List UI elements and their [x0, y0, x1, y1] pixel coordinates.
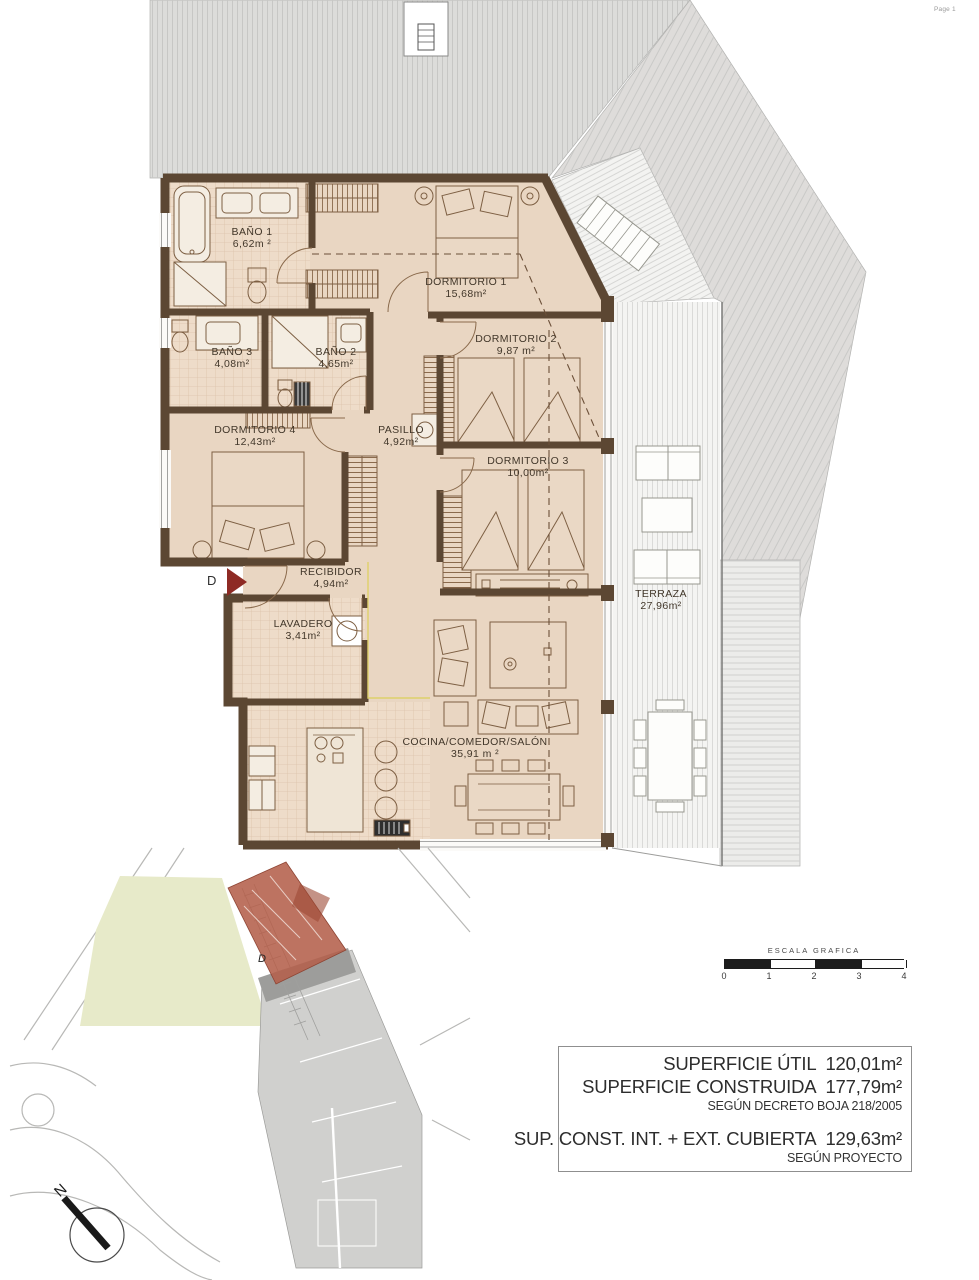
room-name: PASILLO	[378, 424, 424, 436]
room-label-pasillo: PASILLO 4,92m²	[378, 424, 424, 449]
scale-bar: ESCALA GRAFICA 0 1 2 3 4	[724, 946, 904, 983]
room-label-bano1: BAÑO 1 6,62m ²	[232, 226, 273, 251]
summary-label: SUP. CONST. INT. + EXT. CUBIERTA	[514, 1127, 817, 1150]
kitchen-vent	[374, 820, 410, 836]
summary-decreto: SEGÚN DECRETO BOJA 218/2005	[568, 1098, 902, 1114]
kitchen-island	[307, 728, 363, 832]
room-name: BAÑO 1	[232, 226, 273, 238]
roof-deck-right	[720, 560, 800, 866]
room-area: 27,96m²	[635, 600, 687, 612]
summary-value: 120,01m²	[825, 1052, 902, 1075]
summary-label: SEGÚN DECRETO BOJA 218/2005	[708, 1098, 902, 1114]
page-number: Page 1	[934, 6, 956, 13]
summary-label: SUPERFICIE CONSTRUIDA	[582, 1075, 816, 1098]
room-area: 35,91 m ²	[402, 748, 547, 760]
room-area: 15,68m²	[425, 288, 507, 300]
scale-segment	[861, 960, 908, 968]
room-name: DORMITORIO 2	[475, 333, 557, 345]
site-unit-marker: D	[258, 953, 266, 965]
radiator-cabinet	[294, 382, 310, 406]
scale-bar-ticks: 0 1 2 3 4	[724, 971, 904, 983]
summary-const-int-ext: SUP. CONST. INT. + EXT. CUBIERTA 129,63m…	[568, 1127, 902, 1150]
room-label-recibidor: RECIBIDOR 4,94m²	[300, 566, 362, 591]
room-name: DORMITORIO 3	[487, 455, 569, 467]
wardrobe-pasillo	[347, 456, 377, 546]
room-label-dorm3: DORMITORIO 3 10,00m²	[487, 455, 569, 480]
beds-dorm2	[424, 356, 580, 442]
room-area: 4,92m²	[378, 436, 424, 448]
summary-util: SUPERFICIE ÚTIL 120,01m²	[568, 1052, 902, 1075]
scale-segment	[770, 960, 817, 968]
room-label-cocina: COCINA/COMEDOR/SALÓN 35,91 m ²	[402, 736, 547, 761]
room-name: COCINA/COMEDOR/SALÓN	[402, 736, 547, 748]
scale-segment	[725, 960, 770, 968]
room-label-bano3: BAÑO 3 4,08m²	[212, 346, 253, 371]
summary-proyecto: SEGÚN PROYECTO	[568, 1150, 902, 1166]
summary-construida: SUPERFICIE CONSTRUIDA 177,79m²	[568, 1075, 902, 1098]
room-label-dorm1: DORMITORIO 1 15,68m²	[425, 276, 507, 301]
room-area: 4,65m²	[316, 358, 357, 370]
room-label-lavadero: LAVADERO 3,41m²	[274, 618, 333, 643]
room-area: 9,87 m²	[475, 345, 557, 357]
section-marker-label: D	[207, 573, 216, 588]
scale-tick: 1	[766, 971, 771, 981]
surface-summary-box: SUPERFICIE ÚTIL 120,01m² SUPERFICIE CONS…	[558, 1046, 912, 1172]
summary-value: 177,79m²	[825, 1075, 902, 1098]
summary-label: SUPERFICIE ÚTIL	[663, 1052, 816, 1075]
room-label-terraza: TERRAZA 27,96m²	[635, 588, 687, 613]
scale-bar-title: ESCALA GRAFICA	[724, 946, 904, 955]
room-name: BAÑO 3	[212, 346, 253, 358]
scale-tick: 4	[901, 971, 906, 981]
terrace-coffee-table	[642, 498, 692, 532]
room-name: DORMITORIO 1	[425, 276, 507, 288]
sink-bath3	[196, 316, 258, 350]
room-area: 12,43m²	[214, 436, 296, 448]
chimney	[404, 2, 448, 56]
sofa-vertical	[434, 620, 476, 696]
scale-tick: 0	[721, 971, 726, 981]
room-name: RECIBIDOR	[300, 566, 362, 578]
terrace-sofa-2	[634, 550, 700, 584]
scale-tick: 3	[856, 971, 861, 981]
room-label-dorm2: DORMITORIO 2 9,87 m²	[475, 333, 557, 358]
scale-segment	[816, 960, 861, 968]
room-name: DORMITORIO 4	[214, 424, 296, 436]
scale-bar-segments	[724, 959, 904, 969]
bathtub	[174, 186, 210, 262]
shower-bath1	[174, 262, 226, 306]
room-label-dorm4: DORMITORIO 4 12,43m²	[214, 424, 296, 449]
terrace-sofa-1	[636, 446, 700, 480]
north-arrow: N	[51, 1181, 124, 1262]
room-area: 4,08m²	[212, 358, 253, 370]
beds-dorm3	[443, 470, 588, 596]
room-name: TERRAZA	[635, 588, 687, 600]
room-name: LAVADERO	[274, 618, 333, 630]
room-area: 4,94m²	[300, 578, 362, 590]
site-building-main	[258, 950, 422, 1268]
room-area: 6,62m ²	[232, 238, 273, 250]
summary-value: 129,63m²	[825, 1127, 902, 1150]
summary-label: SEGÚN PROYECTO	[787, 1150, 902, 1166]
room-area: 10,00m²	[487, 467, 569, 479]
room-area: 3,41m²	[274, 630, 333, 642]
room-name: BAÑO 2	[316, 346, 357, 358]
plan-sheet: D N Page 1 BAÑO 1 6,62m ² DORMITORIO 1 1…	[0, 0, 979, 1280]
room-label-bano2: BAÑO 2 4,65m²	[316, 346, 357, 371]
scale-tick: 2	[811, 971, 816, 981]
